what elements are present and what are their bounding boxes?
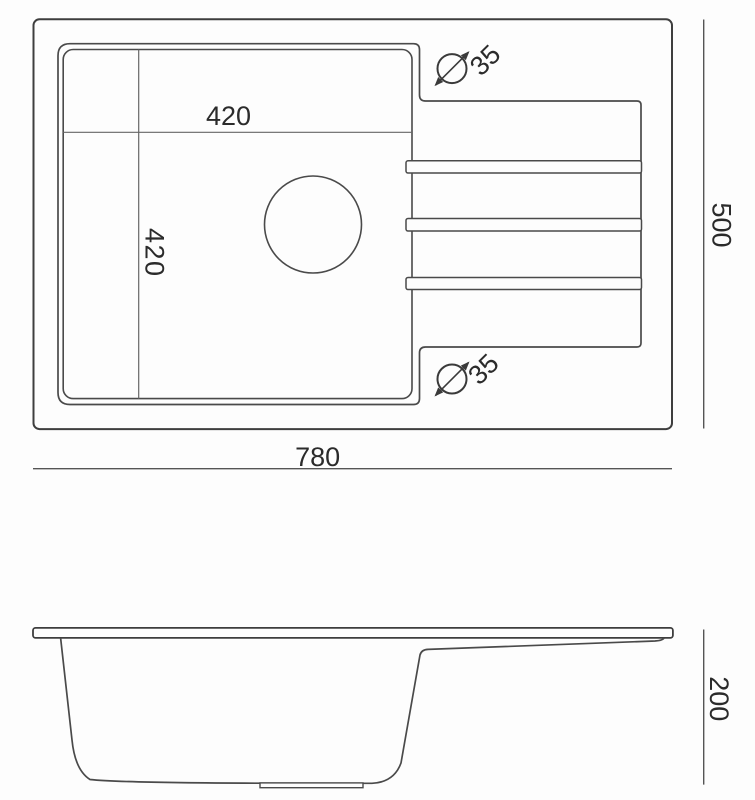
svg-text:35: 35 — [462, 348, 504, 390]
svg-text:35: 35 — [464, 39, 506, 81]
svg-text:500: 500 — [707, 202, 737, 247]
svg-text:420: 420 — [206, 101, 251, 131]
svg-text:200: 200 — [704, 676, 734, 721]
svg-text:780: 780 — [295, 442, 340, 472]
svg-text:420: 420 — [139, 228, 169, 278]
